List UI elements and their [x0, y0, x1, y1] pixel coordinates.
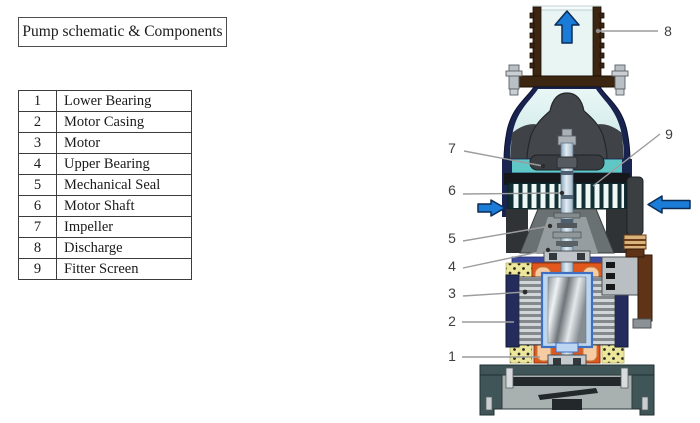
diagram-title: Pump schematic & Components: [18, 17, 227, 47]
component-name: Fitter Screen: [57, 259, 192, 280]
component-number: 3: [19, 133, 57, 154]
part-label-6: 6: [448, 182, 456, 198]
part-label-3: 3: [448, 285, 456, 301]
motor-rotor: [542, 273, 592, 347]
table-row: 2Motor Casing: [19, 112, 192, 133]
component-name: Lower Bearing: [57, 91, 192, 112]
table-row: 9Fitter Screen: [19, 259, 192, 280]
component-number: 6: [19, 196, 57, 217]
part-label-4: 4: [448, 258, 456, 274]
table-row: 3Motor: [19, 133, 192, 154]
pump-cross-section: 8 9 7 6 5 4 3 2 1: [440, 5, 695, 418]
component-name: Motor Shaft: [57, 196, 192, 217]
part-label-1: 1: [448, 348, 456, 364]
upper-bearing: [544, 251, 590, 262]
table-row: 6Motor Shaft: [19, 196, 192, 217]
component-name: Impeller: [57, 217, 192, 238]
part-label-9: 9: [665, 126, 673, 142]
component-name: Discharge: [57, 238, 192, 259]
table-row: 1Lower Bearing: [19, 91, 192, 112]
component-name: Motor: [57, 133, 192, 154]
component-name: Upper Bearing: [57, 154, 192, 175]
part-label-7: 7: [448, 140, 456, 156]
component-number: 1: [19, 91, 57, 112]
flow-in-right-arrow-icon: [478, 200, 505, 216]
component-number: 9: [19, 259, 57, 280]
discharge-pipe: [530, 6, 604, 77]
pump-base: [480, 365, 654, 415]
part-label-2: 2: [448, 313, 456, 329]
impeller-hub: [557, 157, 577, 168]
component-number: 5: [19, 175, 57, 196]
part-label-8: 8: [664, 23, 672, 39]
diagram-title-text: Pump schematic & Components: [22, 23, 222, 41]
component-number: 7: [19, 217, 57, 238]
components-table: 1Lower Bearing 2Motor Casing 3Motor 4Upp…: [18, 90, 192, 280]
component-name: Motor Casing: [57, 112, 192, 133]
leader-line-6: [463, 193, 562, 194]
component-number: 2: [19, 112, 57, 133]
table-row: 8Discharge: [19, 238, 192, 259]
component-number: 4: [19, 154, 57, 175]
component-name: Mechanical Seal: [57, 175, 192, 196]
component-number: 8: [19, 238, 57, 259]
part-label-5: 5: [448, 230, 456, 246]
table-row: 5Mechanical Seal: [19, 175, 192, 196]
flow-in-left-arrow-icon: [648, 196, 690, 213]
table-row: 4Upper Bearing: [19, 154, 192, 175]
table-row: 7Impeller: [19, 217, 192, 238]
